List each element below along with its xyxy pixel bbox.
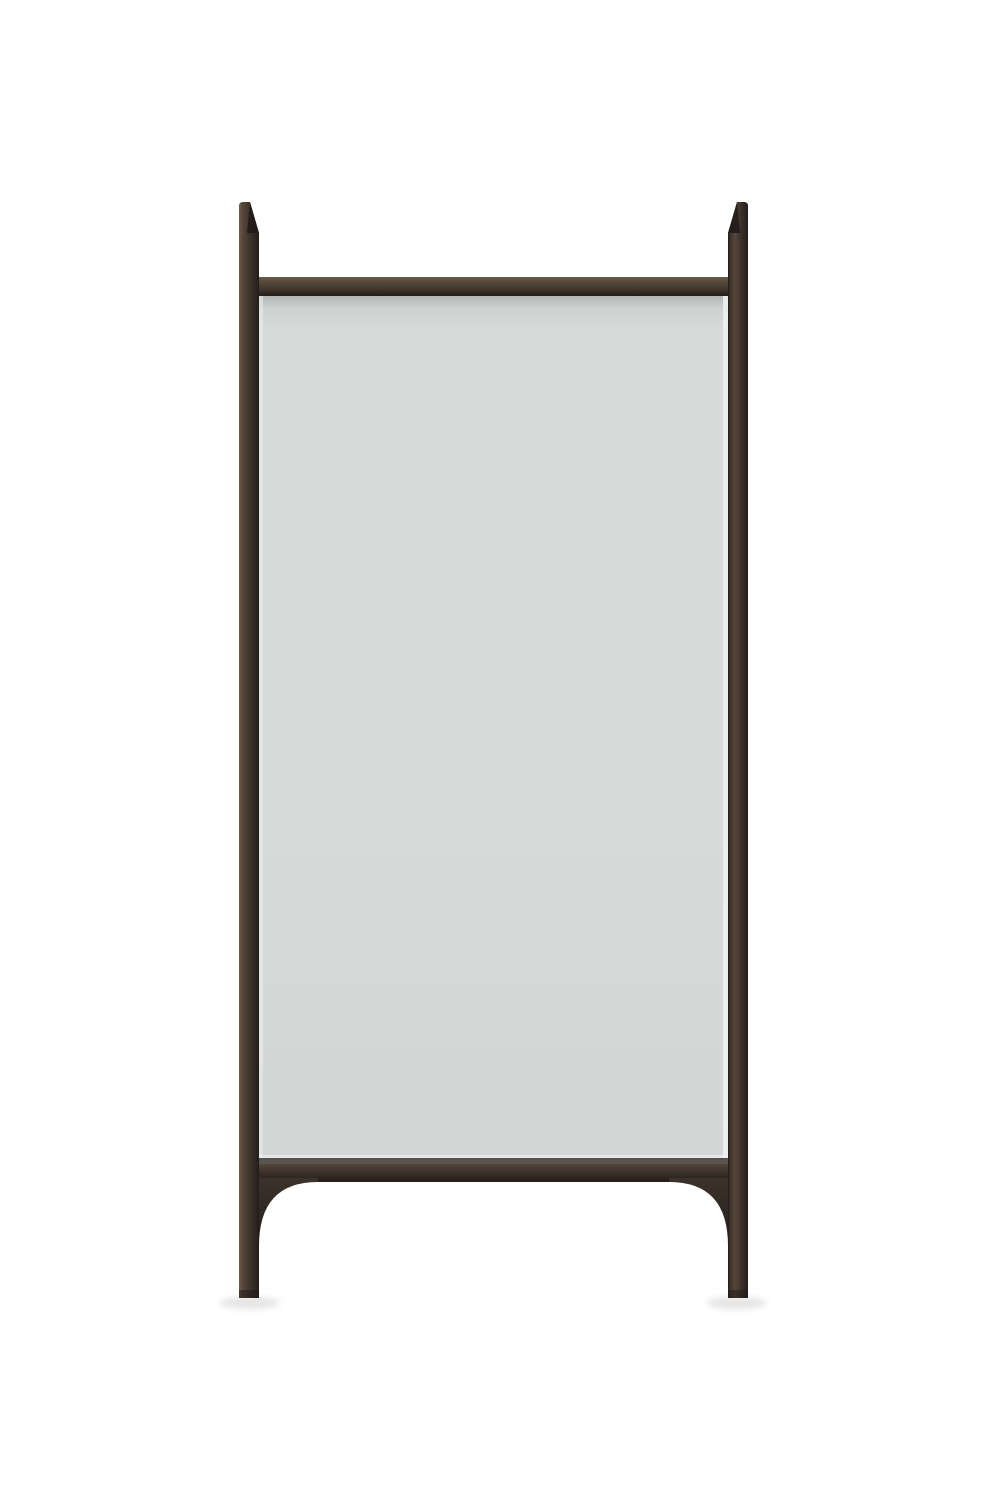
left-post <box>239 202 259 1298</box>
mirror-glass <box>259 296 728 1160</box>
top-rail <box>254 277 733 296</box>
left-foot-shadow <box>220 1297 280 1309</box>
glass-left-edge-highlight <box>259 296 263 1160</box>
floor-mirror <box>220 202 767 1309</box>
bottom-rail <box>254 1164 733 1182</box>
glass-bottom-seam <box>259 1158 728 1164</box>
right-foot-tip <box>728 1290 748 1298</box>
glass-bottom-highlight <box>259 1155 728 1158</box>
left-foot-tip <box>239 1290 259 1298</box>
right-post <box>728 202 748 1298</box>
product-photo <box>0 0 1000 1500</box>
glass-top-shade <box>259 296 728 308</box>
glass-right-edge-highlight <box>723 296 728 1160</box>
right-foot-shadow <box>707 1297 767 1309</box>
